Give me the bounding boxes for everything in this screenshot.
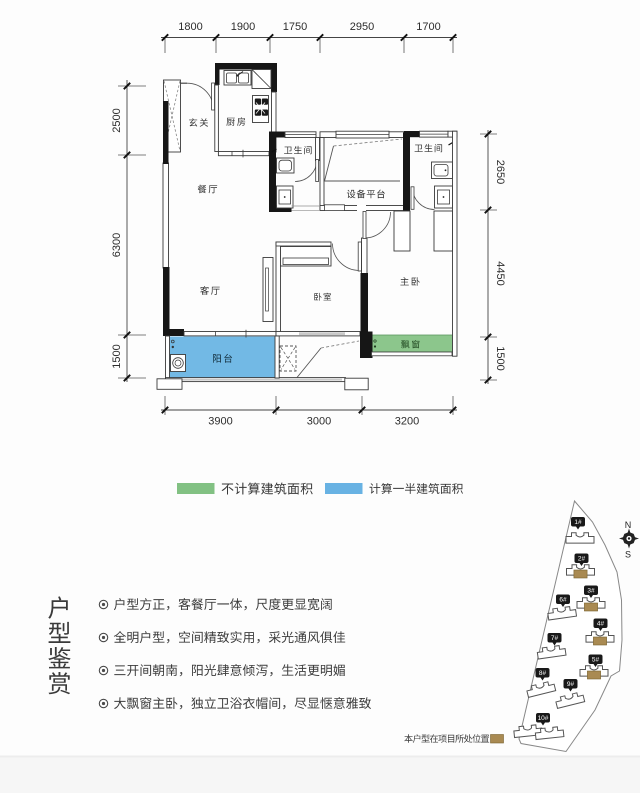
svg-text:3000: 3000: [307, 416, 331, 428]
svg-text:7#: 7#: [551, 635, 559, 642]
svg-text:2650: 2650: [494, 160, 506, 184]
svg-text:1800: 1800: [178, 21, 202, 33]
svg-text:1#: 1#: [574, 519, 582, 526]
svg-text:5#: 5#: [592, 657, 600, 664]
svg-text:6#: 6#: [559, 597, 567, 604]
svg-text:2500: 2500: [111, 108, 123, 132]
svg-text:2950: 2950: [350, 21, 374, 33]
svg-text:2#: 2#: [578, 556, 586, 563]
svg-text:4#: 4#: [597, 621, 605, 628]
svg-text:3200: 3200: [395, 416, 419, 428]
svg-text:1500: 1500: [111, 344, 123, 368]
svg-text:4450: 4450: [494, 261, 506, 285]
svg-text:1500: 1500: [494, 346, 506, 370]
svg-text:1900: 1900: [231, 21, 255, 33]
svg-text:10#: 10#: [538, 715, 549, 722]
svg-text:6300: 6300: [111, 233, 123, 257]
svg-text:S: S: [625, 550, 631, 560]
svg-text:9#: 9#: [567, 681, 575, 688]
svg-text:N: N: [625, 520, 632, 530]
svg-text:1700: 1700: [416, 21, 440, 33]
svg-text:1750: 1750: [283, 21, 307, 33]
svg-text:3#: 3#: [587, 588, 595, 595]
svg-text:3900: 3900: [208, 416, 232, 428]
svg-text:8#: 8#: [539, 670, 547, 677]
